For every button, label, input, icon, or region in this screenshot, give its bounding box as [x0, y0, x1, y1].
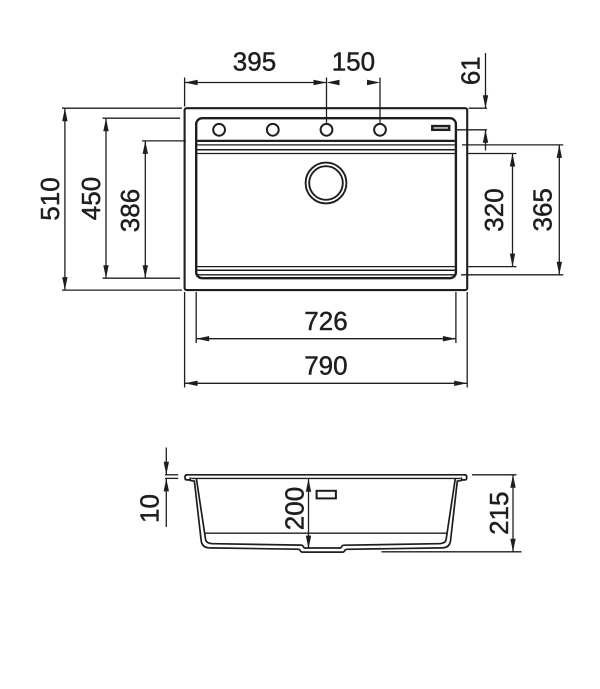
svg-text:395: 395: [233, 47, 276, 77]
svg-text:510: 510: [35, 177, 65, 220]
svg-text:320: 320: [479, 188, 509, 231]
svg-text:365: 365: [528, 188, 558, 231]
svg-text:61: 61: [456, 56, 486, 85]
svg-text:726: 726: [304, 306, 347, 336]
svg-text:150: 150: [332, 47, 375, 77]
svg-text:386: 386: [115, 189, 145, 232]
svg-text:450: 450: [76, 177, 106, 220]
svg-text:200: 200: [280, 487, 310, 530]
svg-text:790: 790: [304, 351, 347, 381]
svg-text:215: 215: [484, 492, 514, 535]
svg-text:10: 10: [135, 494, 165, 523]
